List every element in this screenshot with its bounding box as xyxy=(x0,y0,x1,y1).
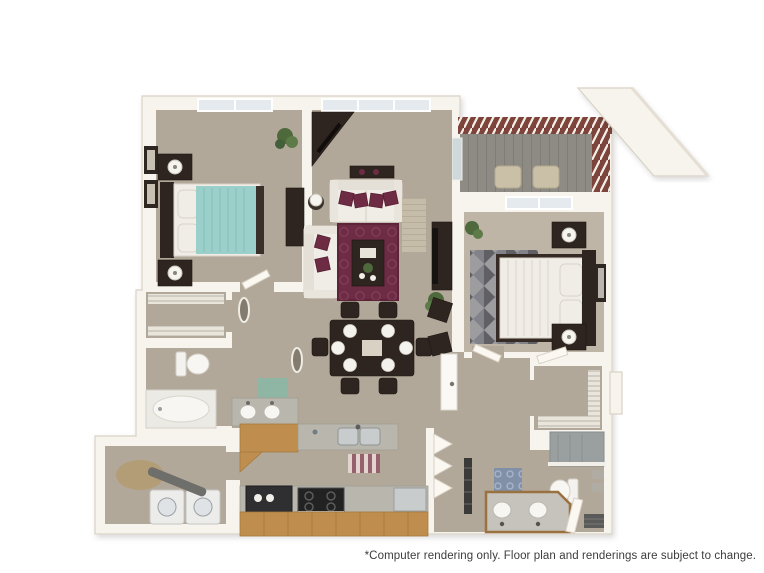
peninsula-counter xyxy=(298,424,398,450)
bathtub xyxy=(146,390,216,428)
sink-basin xyxy=(338,428,358,445)
toilet xyxy=(176,352,209,376)
living-window xyxy=(322,99,430,111)
tv-screen xyxy=(432,228,438,284)
shower-glass-door xyxy=(548,462,606,466)
bed-teal xyxy=(160,182,264,258)
headboard xyxy=(160,182,174,258)
loveseat xyxy=(304,226,338,298)
disclaimer-caption: *Computer rendering only. Floor plan and… xyxy=(365,550,756,562)
bifold-closet-doors xyxy=(434,434,452,498)
wall-bumpout xyxy=(610,372,622,414)
cabinet-fronts xyxy=(240,512,428,536)
sofa xyxy=(330,180,402,222)
oval-wall-mirror xyxy=(292,348,302,372)
bed-pillow xyxy=(178,224,198,252)
floor-plan-svg xyxy=(0,0,764,573)
wire-shelf xyxy=(148,294,224,304)
towel xyxy=(592,470,604,479)
patio-chair xyxy=(533,166,559,188)
glass-shower xyxy=(548,432,606,466)
oval-wall-mirror xyxy=(239,298,249,322)
entry-door xyxy=(441,354,457,410)
door-knob xyxy=(450,382,454,386)
bed-pillow xyxy=(178,190,198,218)
tv-cabinet xyxy=(432,222,452,290)
wire-shelf xyxy=(538,416,598,428)
vanity-double-sink xyxy=(232,398,298,426)
bed-pillow xyxy=(560,264,582,296)
sink-basin xyxy=(360,428,380,445)
footboard xyxy=(256,186,264,254)
dresser xyxy=(286,188,304,246)
patio-chair xyxy=(495,166,521,188)
wire-shelf xyxy=(148,326,224,336)
striped-kitchen-rug xyxy=(348,454,380,473)
faucet xyxy=(356,425,361,430)
balcony xyxy=(452,117,612,192)
teal-bedspread xyxy=(196,186,258,254)
centerpiece xyxy=(362,340,382,356)
runner-rug xyxy=(402,198,426,252)
bedroom2-window xyxy=(506,197,572,209)
vase xyxy=(373,169,379,175)
linen-shelves xyxy=(464,458,472,514)
table-lamp xyxy=(310,194,322,206)
wood-cabinet xyxy=(240,424,298,452)
balcony-railing-top xyxy=(458,117,612,134)
console-table xyxy=(350,166,394,178)
floor-plan-rendering: *Computer rendering only. Floor plan and… xyxy=(0,0,764,573)
balcony-railing-right xyxy=(592,132,610,192)
balcony-sliding-door xyxy=(452,138,462,180)
dishwasher xyxy=(394,488,426,511)
bedroom1-window xyxy=(198,99,272,111)
coffee-table xyxy=(352,240,384,286)
teal-bath-mat xyxy=(258,378,288,398)
tray xyxy=(360,248,376,258)
door-mat xyxy=(584,514,604,528)
vase xyxy=(359,169,365,175)
accent-chair xyxy=(428,332,452,356)
double-vanity xyxy=(486,492,570,532)
towel xyxy=(592,483,604,492)
